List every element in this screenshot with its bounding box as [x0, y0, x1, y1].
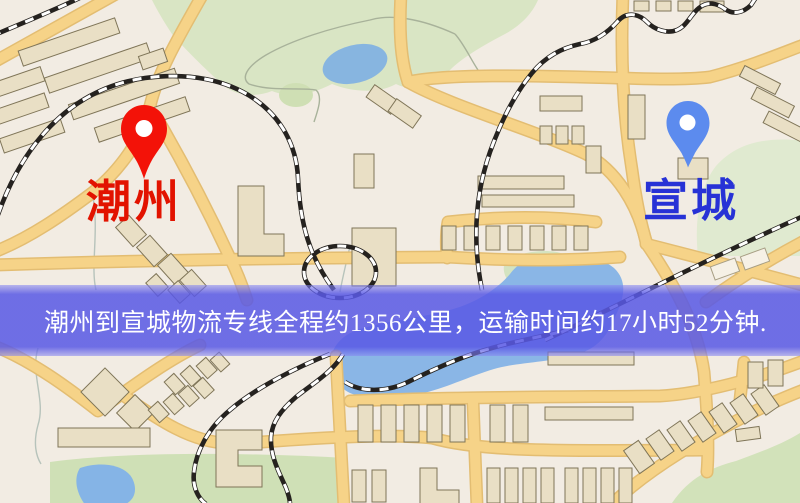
destination-city-label: 宣城	[643, 178, 739, 223]
origin-pin-hole	[136, 120, 153, 137]
destination-pin[interactable]	[665, 97, 713, 171]
origin-pin-icon	[121, 105, 167, 179]
origin-city-label: 潮州	[86, 179, 182, 224]
destination-pin-hole	[680, 115, 696, 131]
map-image	[0, 0, 800, 503]
destination-pin-icon	[667, 101, 710, 168]
map-viewport: 潮州 宣城 潮州到宣城物流专线全程约1356公里，运输时间约17小时52分钟.	[0, 0, 800, 503]
route-info-banner: 潮州到宣城物流专线全程约1356公里，运输时间约17小时52分钟.	[0, 285, 800, 356]
route-info-text: 潮州到宣城物流专线全程约1356公里，运输时间约17小时52分钟.	[0, 303, 767, 339]
origin-pin[interactable]	[119, 101, 169, 181]
